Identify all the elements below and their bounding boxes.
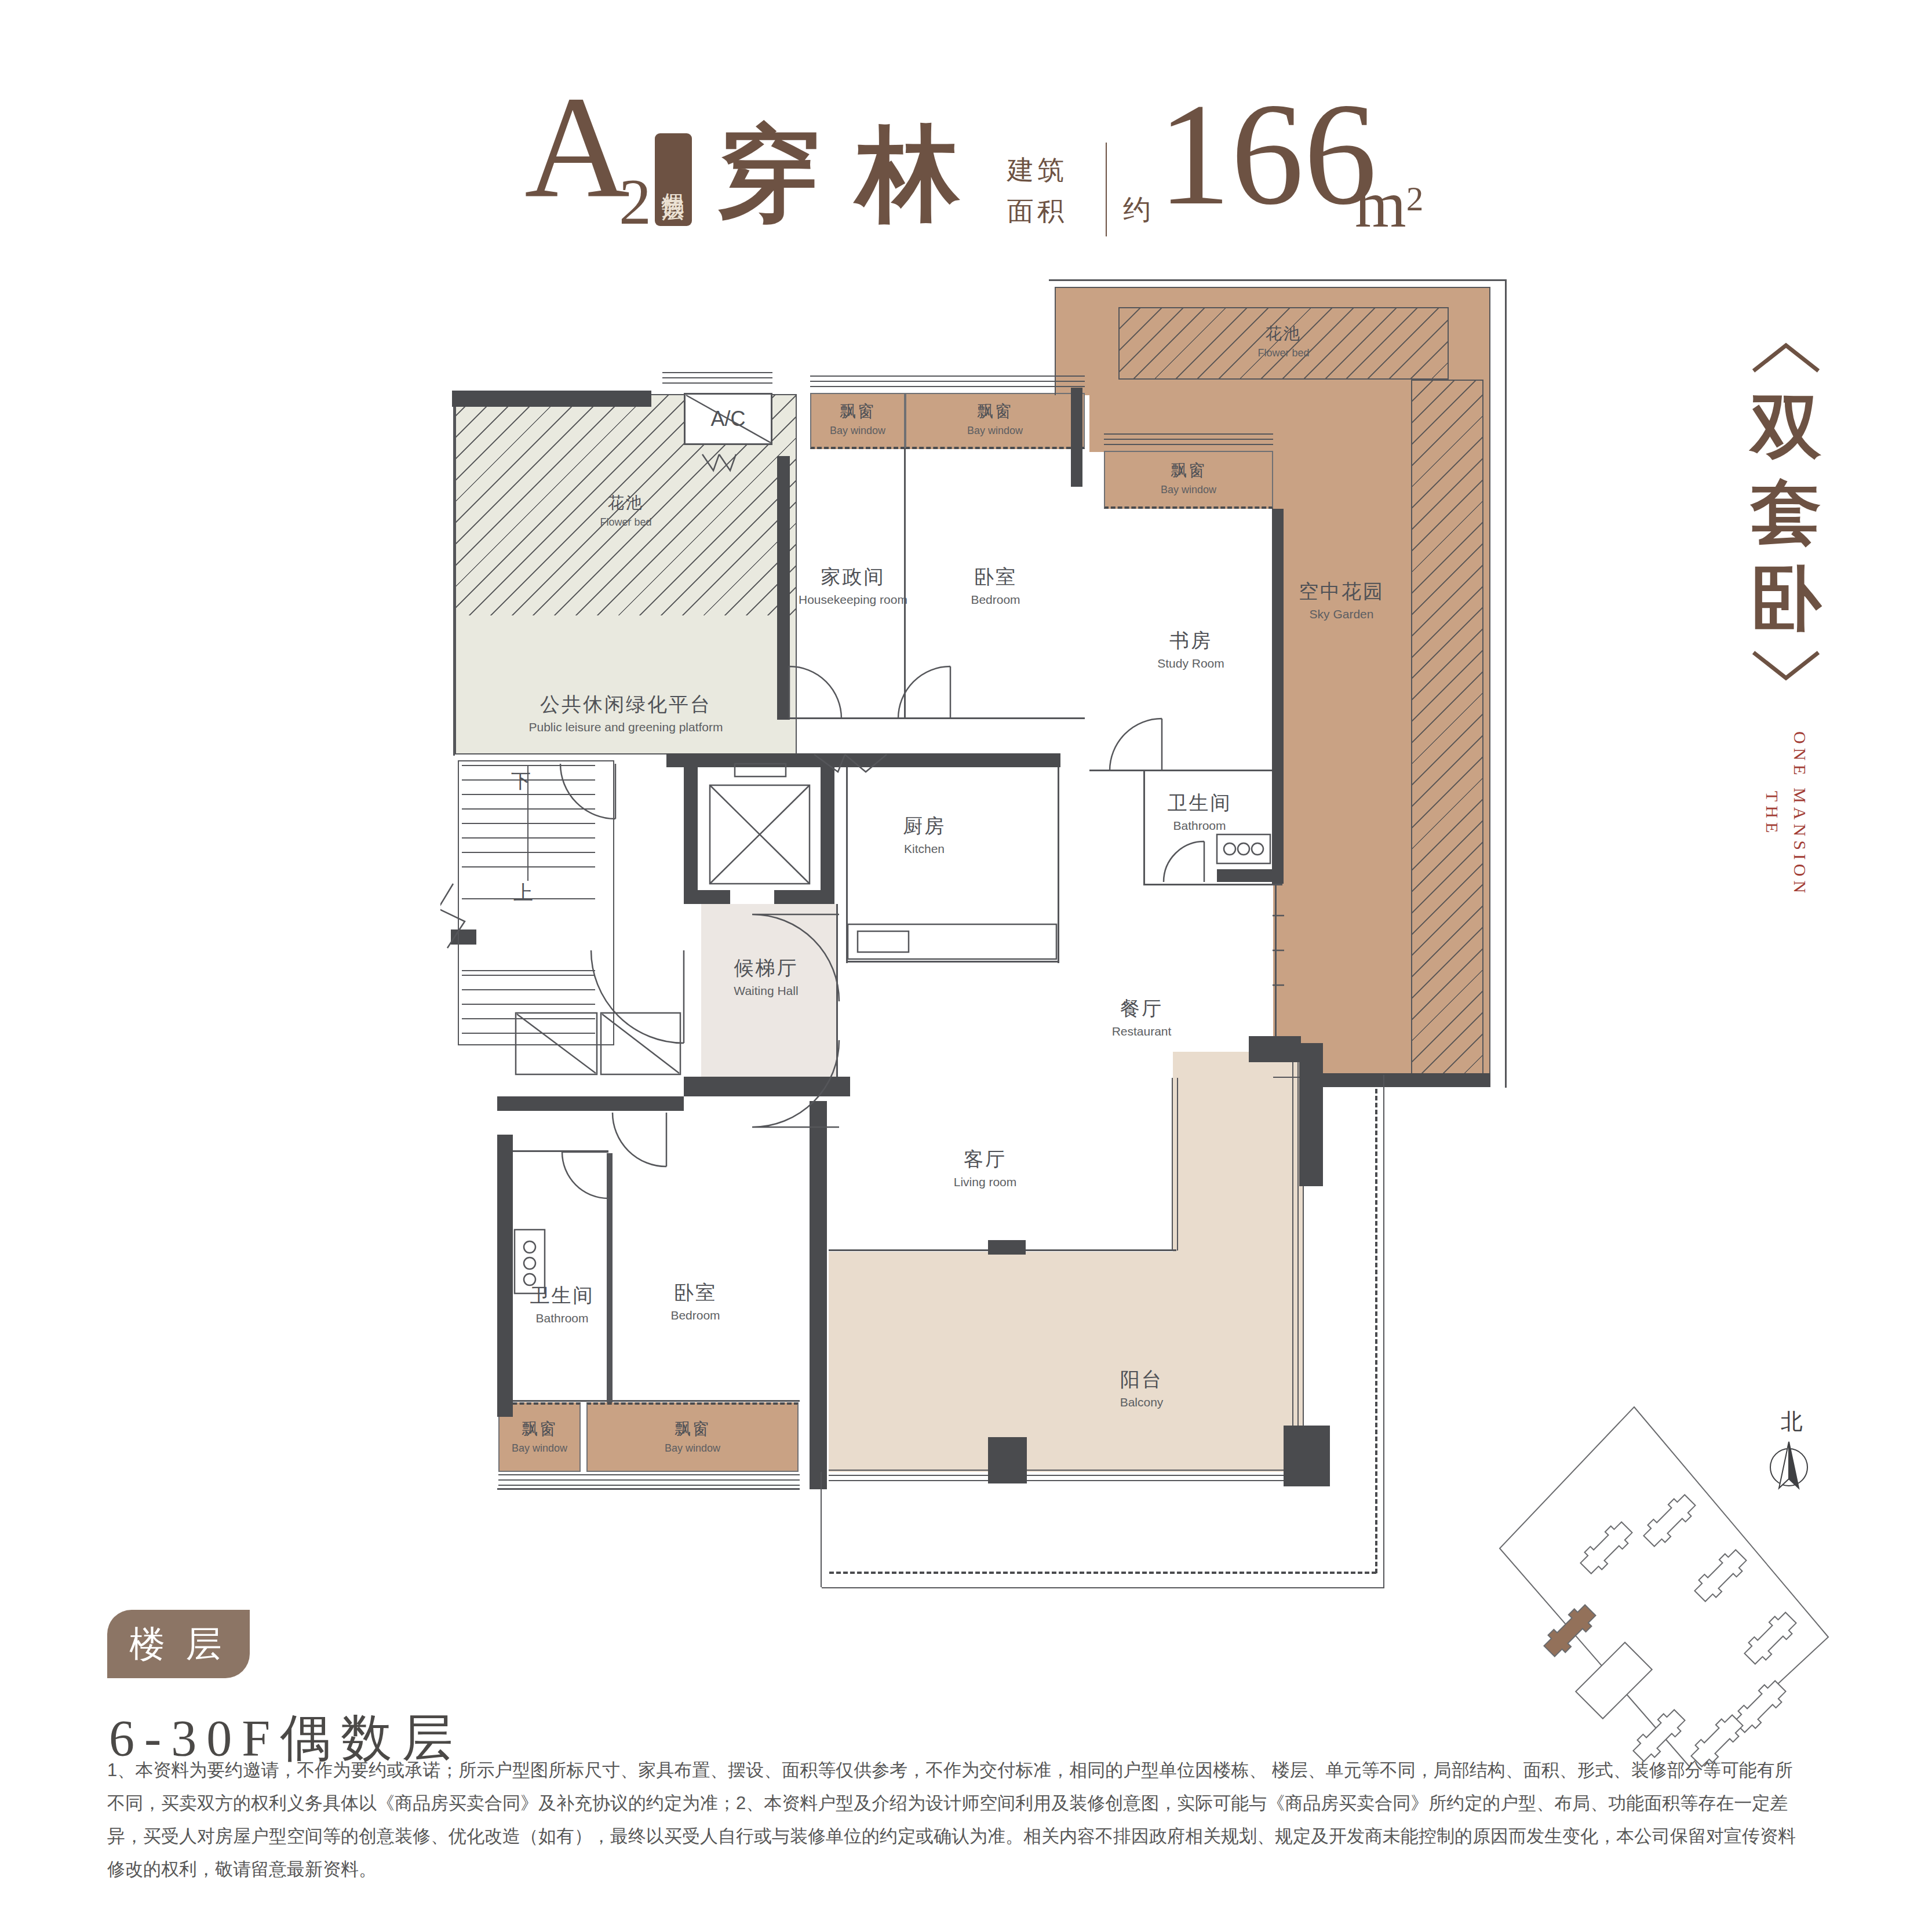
ac-strike-line	[686, 395, 771, 443]
room-label-bedroom-low: 卧室 Bedroom	[670, 1280, 720, 1322]
tagline-char: 套	[1745, 477, 1827, 548]
washbasin-icon	[1217, 834, 1270, 863]
area-unit: m2	[1355, 172, 1423, 238]
unit-name: 穿林	[717, 123, 996, 226]
bay-window-label: 飘窗 Bay window	[512, 1418, 567, 1455]
room-label-study: 书房 Study Room	[1157, 628, 1224, 670]
room-label-balcony: 阳台 Balcony	[1120, 1366, 1164, 1409]
cabinets	[516, 1013, 680, 1074]
room-label-housekeeping: 家政间 Housekeeping room	[799, 564, 907, 607]
double-swing-door-icon	[702, 454, 736, 471]
site-plan-map	[1495, 1402, 1854, 1785]
room-label-kitchen: 厨房 Kitchen	[903, 813, 946, 856]
room-label-bathroom-low: 卫生间 Bathroom	[530, 1282, 595, 1325]
disclaimer-line: 修改的权利，敬请留意最新资料。	[107, 1853, 1854, 1886]
divider	[1106, 143, 1107, 236]
unit-code-sub: 2	[619, 169, 651, 234]
disclaimer-line: 1、本资料为要约邀请，不作为要约或承诺；所示户型图所标尺寸、家具布置、摆设、面积…	[107, 1754, 1854, 1787]
floor-plan: 下 上 A/C 花池 Flower bed 公共休闲绿化平台 Public le…	[440, 261, 1530, 1605]
brand-line1: THE	[1758, 730, 1786, 898]
brand-name: THE ONE MANSION	[1758, 730, 1814, 898]
floor-badge: 楼 层	[107, 1610, 250, 1678]
angle-bracket-bottom-icon	[1750, 649, 1822, 683]
room-label-platform: 公共休闲绿化平台 Public leisure and greening pla…	[528, 691, 723, 734]
area-unit-sup: 2	[1406, 180, 1424, 218]
break-line-icon	[440, 884, 465, 948]
brand-line2: ONE MANSION	[1786, 730, 1814, 898]
bay-window-label: 飘窗 Bay window	[665, 1418, 720, 1455]
disclaimer-line: 异，买受人对房屋户型空间等的创意装修、优化改造（如有），最终以买受人自行或与装修…	[107, 1820, 1854, 1853]
room-label-bathroom-top: 卫生间 Bathroom	[1168, 790, 1232, 833]
north-arrow-icon	[1770, 1442, 1807, 1488]
double-swing-door-icon	[814, 754, 887, 772]
window-ticks	[1273, 916, 1284, 985]
plan-detail-layer	[440, 261, 1530, 1605]
room-label-flower-bed: 花池 Flower bed	[600, 492, 651, 528]
tagline-char: 卧	[1745, 563, 1827, 634]
building-outline	[1576, 1492, 1799, 1770]
kitchen-counter	[848, 924, 1056, 959]
area-label-line1: 建筑	[1007, 150, 1067, 191]
north-label: 北	[1774, 1407, 1809, 1437]
bay-window-label: 飘窗 Bay window	[967, 400, 1023, 437]
room-label-living: 客厅 Living room	[954, 1146, 1017, 1189]
room-label-bedroom-top: 卧室 Bedroom	[971, 564, 1020, 607]
bay-window-label: 飘窗 Bay window	[830, 400, 885, 437]
stairs-down-label: 下	[511, 768, 531, 794]
highlighted-building	[1541, 1602, 1599, 1660]
stairs-up-label: 上	[513, 880, 533, 906]
even-floor-badge: 偶数层	[655, 133, 692, 226]
header: A 2 偶数层 穿林 建筑 面积 约 166 m2	[0, 0, 1932, 267]
room-label-flower-bed-sky: 花池 Flower bed	[1257, 323, 1309, 359]
disclaimer: 1、本资料为要约邀请，不作为要约或承诺；所示户型图所标尺寸、家具布置、摆设、面积…	[107, 1754, 1854, 1886]
tagline-char: 双	[1745, 392, 1827, 462]
door-arcs	[560, 666, 1204, 1198]
room-label-restaurant: 餐厅 Restaurant	[1112, 996, 1172, 1038]
angle-bracket-top-icon	[1750, 341, 1822, 374]
unit-code: A	[524, 74, 630, 220]
disclaimer-line: 不同，买卖双方的权利义务具体以《商品房买卖合同》及补充协议的约定为准；2、本资料…	[107, 1787, 1854, 1820]
room-label-waiting-hall: 候梯厅 Waiting Hall	[734, 955, 798, 998]
tagline-column: 双 套 卧 THE ONE MANSION	[1745, 341, 1827, 898]
area-label-line2: 面积	[1007, 191, 1067, 232]
site-plan: 北	[1495, 1402, 1854, 1785]
area-value: 166	[1158, 81, 1377, 227]
area-label: 建筑 面积	[1007, 150, 1067, 232]
elevator-icon	[710, 764, 810, 884]
area-approx: 约	[1123, 191, 1151, 228]
area-unit-m: m	[1355, 167, 1406, 241]
site-boundary	[1500, 1407, 1828, 1766]
room-label-sky-garden: 空中花园 Sky Garden	[1299, 578, 1384, 621]
bay-window-label: 飘窗 Bay window	[1161, 460, 1216, 496]
